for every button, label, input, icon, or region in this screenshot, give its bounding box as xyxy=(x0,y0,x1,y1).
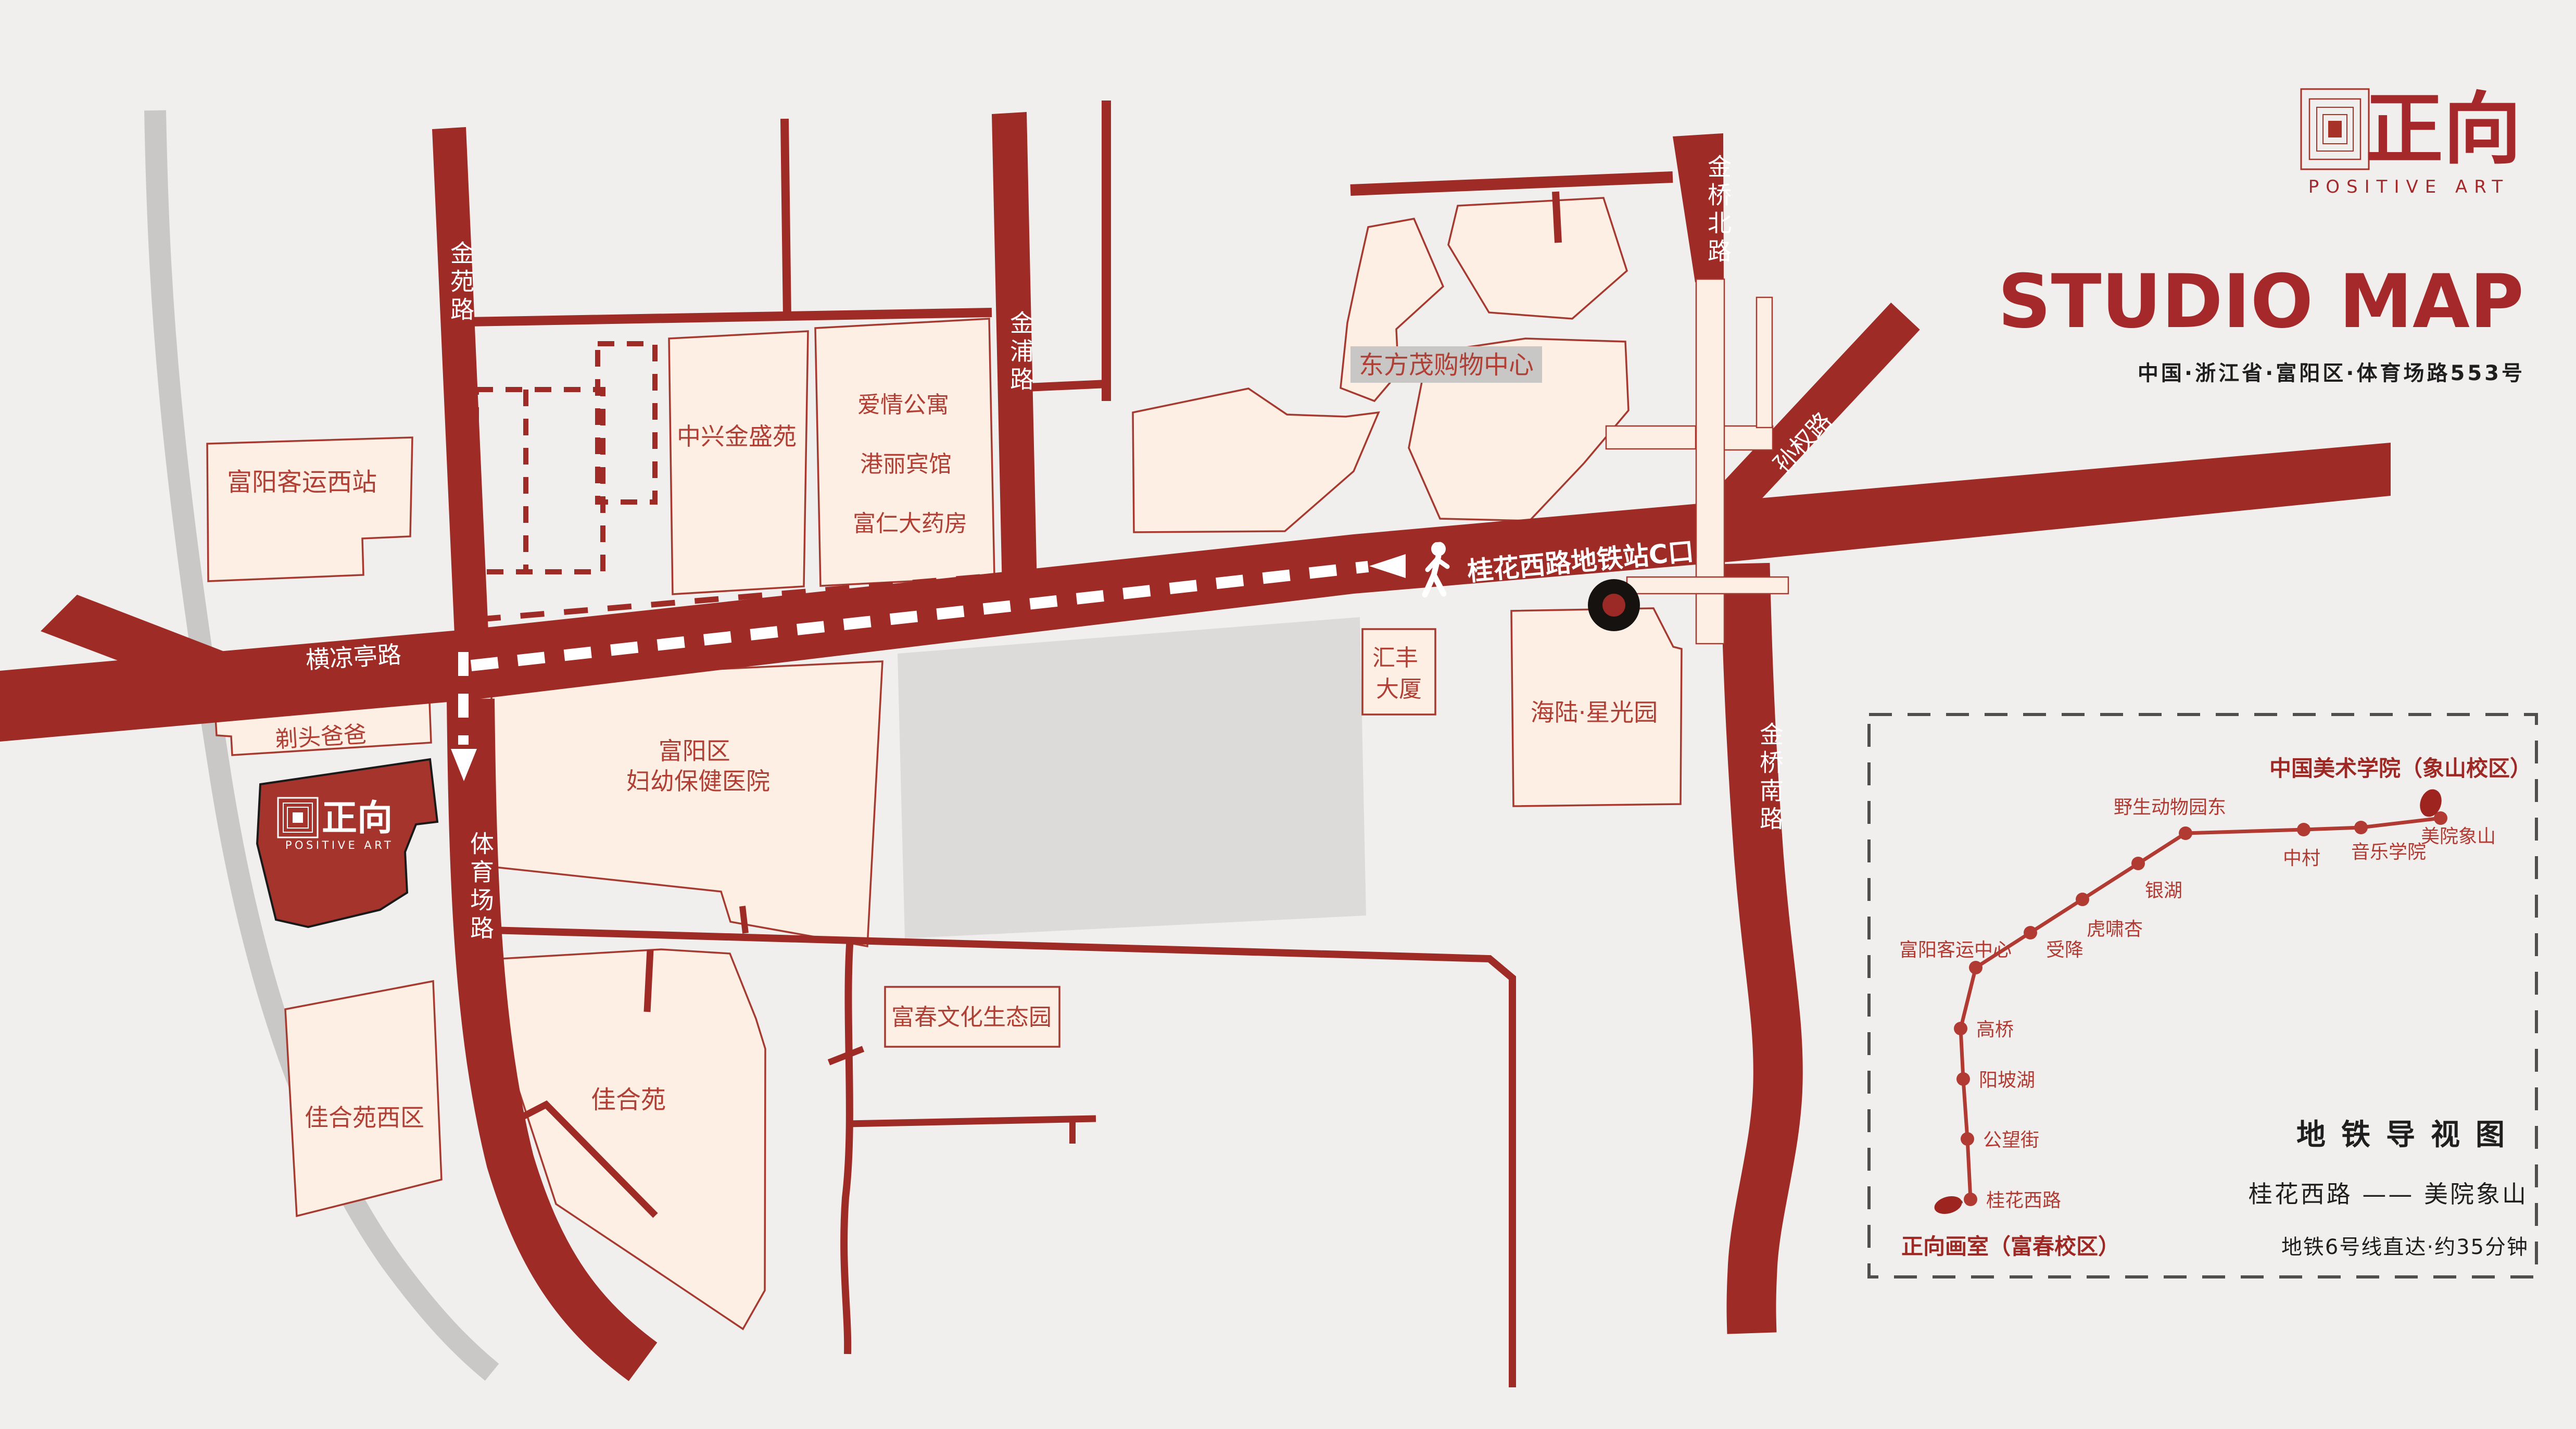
station-yinyue: 音乐学院 xyxy=(2351,842,2426,863)
station-yesheng: 野生动物园东 xyxy=(2114,797,2226,818)
metro-origin-label: 正向画室（富春校区） xyxy=(1901,1234,2120,1259)
label-hospital-line1: 富阳区 xyxy=(659,737,730,765)
label-road-tiyuchang: 体育场路 xyxy=(466,831,495,944)
station-huxiao: 虎啸杏 xyxy=(2087,919,2143,940)
label-huifeng-line1: 汇丰 xyxy=(1372,645,1418,671)
label-dongfangmao: 东方茂购物中心 xyxy=(1359,350,1534,380)
metro-footnote: 地铁6号线直达·约35分钟 xyxy=(2281,1235,2529,1259)
station-guihua: 桂花西路 xyxy=(1986,1190,2061,1211)
label-road-jinyuan: 金苑路 xyxy=(447,241,475,325)
studio-map-poster: 东方茂购物中心 富阳客运西站 中兴金盛苑 爱情公寓 港丽宾馆 富仁大药房 汇丰 … xyxy=(0,0,2576,1429)
station-shoujiang: 受降 xyxy=(2046,939,2083,961)
label-hailu: 海陆·星光园 xyxy=(1531,698,1658,726)
metro-route-summary: 桂花西路 —— 美院象山 xyxy=(2249,1180,2528,1208)
metro-panel-title: 中国美术学院（象山校区） xyxy=(2269,756,2532,781)
label-jiaheyuan: 佳合苑 xyxy=(591,1085,666,1114)
brand-en: POSITIVE ART xyxy=(2308,177,2509,197)
station-yinhu: 银湖 xyxy=(2145,880,2182,901)
label-road-hengliangting: 横凉亭路 xyxy=(305,640,402,674)
exit-c-marker xyxy=(1588,579,1640,631)
studio-logo-cn: 正向 xyxy=(322,798,393,839)
building-zhongxing xyxy=(669,331,808,594)
label-furen: 富仁大药房 xyxy=(853,510,967,537)
label-road-jinpu: 金浦路 xyxy=(1006,310,1034,395)
road-jinqiao-south xyxy=(1745,563,1778,1333)
gray-block xyxy=(898,617,1366,938)
label-fuyang-west-bus: 富阳客运西站 xyxy=(227,468,377,497)
studio-logo-en: POSITIVE ART xyxy=(285,839,394,851)
label-zhongxing: 中兴金盛苑 xyxy=(677,422,797,450)
label-gangli: 港丽宾馆 xyxy=(860,451,952,478)
building-jiaheyuan-west xyxy=(285,981,441,1216)
label-road-jinqiao-south: 金桥南路 xyxy=(1756,722,1784,834)
station-gongwang: 公望街 xyxy=(1983,1130,2039,1151)
station-zhongcun: 中村 xyxy=(2283,848,2320,869)
page-title: STUDIO MAP xyxy=(1998,259,2524,345)
label-fuchun-park: 富春文化生态园 xyxy=(891,1004,1052,1031)
label-hospital-line2: 妇幼保健医院 xyxy=(626,767,770,795)
metro-heading: 地铁导视图 xyxy=(2296,1118,2520,1152)
label-jiaheyuan-west: 佳合苑西区 xyxy=(305,1104,424,1132)
brand-cn: 正向 xyxy=(2365,84,2521,175)
label-titou: 剃头爸爸 xyxy=(274,721,368,754)
page-subtitle: 中国·浙江省·富阳区·体育场路553号 xyxy=(2138,361,2525,385)
label-road-jinqiao-north: 金桥北路 xyxy=(1704,154,1732,267)
station-gaoqiao: 高桥 xyxy=(1976,1019,2014,1041)
station-meiyuan: 美院象山 xyxy=(2421,826,2496,847)
label-aiqing: 爱情公寓 xyxy=(857,392,949,418)
station-yangpo: 阳坡湖 xyxy=(1979,1070,2035,1091)
label-huifeng-line2: 大厦 xyxy=(1376,676,1422,703)
station-keyun: 富阳客运中心 xyxy=(1899,939,2012,961)
